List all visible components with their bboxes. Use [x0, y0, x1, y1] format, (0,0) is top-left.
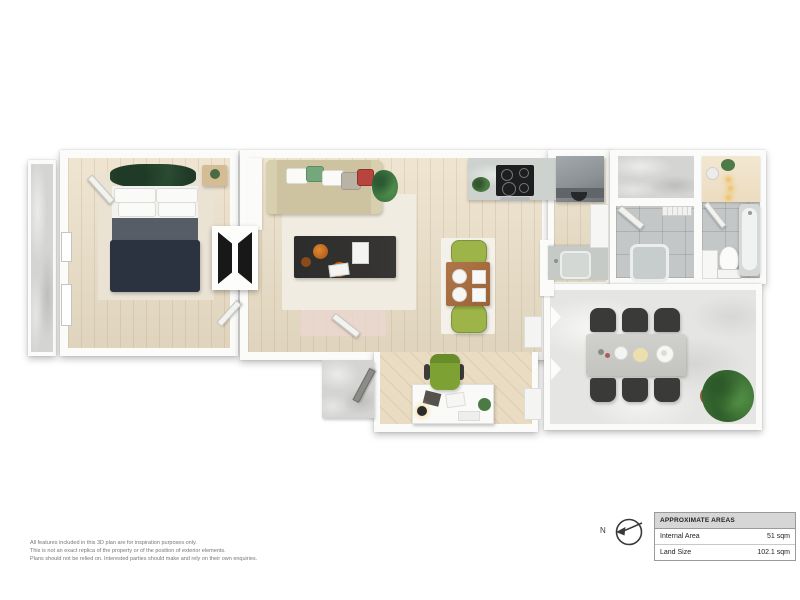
bedroom-living-wall	[248, 158, 262, 230]
burner	[502, 182, 516, 196]
faucet-icon	[554, 259, 558, 263]
bed-pillow	[158, 202, 196, 217]
dining-chair-green	[451, 303, 487, 333]
area-value: 102.1 sqm	[757, 549, 790, 556]
table-row: Internal Area 51 sqm	[655, 529, 795, 545]
outdoor-chair	[654, 378, 680, 402]
outdoor-chair	[622, 378, 648, 402]
disclaimer-text: All features included in this 3D plan ar…	[30, 539, 257, 563]
north-arrow-icon	[610, 514, 646, 550]
desk-tray	[458, 411, 480, 421]
bowl-small	[301, 257, 311, 267]
wall-shelf	[524, 316, 542, 348]
desk-lamp-icon	[417, 406, 427, 416]
areas-table-title: APPROXIMATE AREAS	[655, 513, 795, 529]
bed-pillow	[156, 188, 198, 203]
compass-north-label: N	[600, 526, 606, 535]
bedroom-window	[61, 284, 72, 326]
toilet	[719, 246, 739, 271]
entry-pad	[322, 360, 374, 418]
disclaimer-line: All features included in this 3D plan ar…	[30, 539, 257, 547]
area-label: Internal Area	[660, 533, 700, 540]
bed-runner	[112, 218, 198, 241]
plate	[452, 269, 467, 284]
outdoor-chair	[590, 308, 616, 332]
outdoor-chair	[654, 308, 680, 332]
area-value: 51 sqm	[767, 533, 790, 540]
toilet-tank	[717, 269, 741, 279]
approximate-areas-table: APPROXIMATE AREAS Internal Area 51 sqm L…	[654, 512, 796, 561]
laundry-vent	[662, 206, 692, 216]
bath-cabinet	[702, 250, 718, 279]
plate	[452, 287, 467, 302]
disclaimer-line: Plans should not be relied on. Intereste…	[30, 555, 257, 563]
burner	[519, 183, 529, 193]
vanity-plant-icon	[721, 159, 735, 171]
outdoor-chair	[622, 308, 648, 332]
papers	[445, 392, 466, 409]
desk-plant-icon	[478, 398, 491, 411]
table-row: Land Size 102.1 sqm	[655, 545, 795, 560]
candle-icon	[726, 177, 731, 182]
storage-floor	[618, 156, 694, 198]
faucet-icon	[748, 211, 752, 215]
candle-icon	[726, 195, 731, 200]
sofa-pillow-white	[286, 168, 308, 184]
table-decor	[598, 349, 604, 355]
office-chair-back	[430, 354, 460, 363]
vanity-lamp-icon	[706, 167, 719, 180]
disclaimer-line: This is not an exact replica of the prop…	[30, 547, 257, 555]
floor-plan-page: N APPROXIMATE AREAS Internal Area 51 sqm…	[0, 0, 800, 600]
bed-pillow	[118, 202, 156, 217]
napkin	[472, 270, 486, 284]
sofa-armrest	[266, 160, 277, 214]
sofa-plant-icon	[372, 170, 398, 202]
wall-shelf	[524, 388, 542, 420]
area-label: Land Size	[660, 549, 691, 556]
outdoor-chair	[590, 378, 616, 402]
oven-handle	[500, 197, 530, 201]
tall-cabinet	[590, 204, 609, 248]
bedhead-plants	[110, 164, 196, 188]
bread-plate	[633, 348, 648, 362]
balcony-floor	[31, 164, 53, 352]
laundry-tub	[630, 244, 669, 282]
napkin	[472, 288, 486, 302]
bed-pillow	[114, 188, 156, 203]
kitchen-sink	[560, 251, 591, 279]
candle-icon	[728, 186, 733, 191]
plate-center	[661, 350, 667, 356]
bedroom-window	[61, 232, 72, 262]
nightstand-plant-icon	[210, 169, 220, 179]
courtyard-plant-icon	[702, 370, 754, 422]
bathtub-inner	[742, 208, 757, 270]
bowl-orange	[313, 244, 328, 259]
bed-blanket	[110, 240, 200, 292]
magazine	[352, 242, 369, 264]
table-decor	[605, 353, 610, 358]
burner	[501, 169, 513, 181]
burner	[519, 168, 529, 178]
counter-plant-icon	[472, 177, 490, 192]
plate	[614, 346, 628, 360]
